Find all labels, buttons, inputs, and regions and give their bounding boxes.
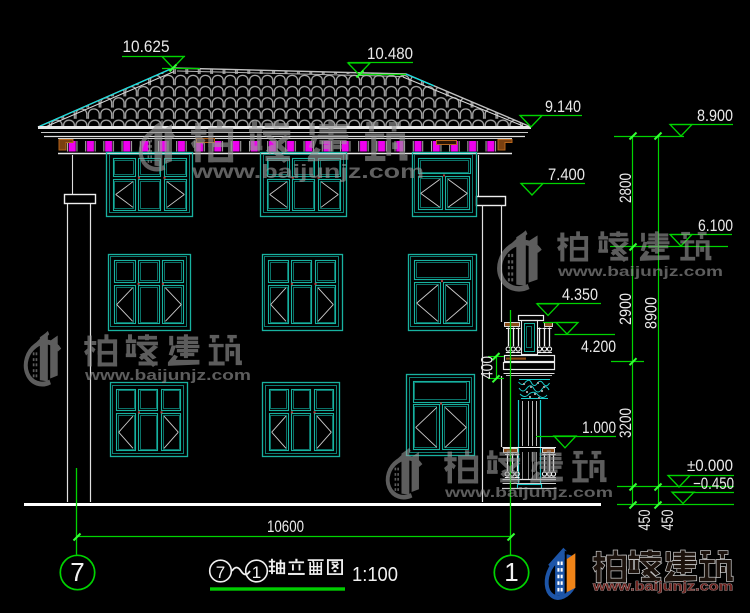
svg-text:−0.450: −0.450 — [693, 475, 734, 493]
svg-text:1: 1 — [252, 563, 261, 582]
svg-text:7: 7 — [70, 557, 84, 587]
svg-text:2900: 2900 — [617, 293, 635, 325]
svg-text:www.baijunjz.com: www.baijunjz.com — [191, 161, 424, 183]
svg-text:7: 7 — [216, 563, 225, 582]
svg-text:www.baijunjz.com: www.baijunjz.com — [84, 368, 251, 384]
svg-text:2800: 2800 — [617, 173, 635, 203]
svg-text:10.480: 10.480 — [367, 45, 413, 63]
svg-text:±0.000: ±0.000 — [687, 457, 733, 475]
svg-text:7.400: 7.400 — [548, 166, 585, 184]
svg-text:10.625: 10.625 — [123, 38, 170, 56]
svg-text:8900: 8900 — [643, 297, 661, 329]
svg-text:1.000: 1.000 — [582, 419, 616, 437]
svg-text:www.baijunjz.com: www.baijunjz.com — [557, 263, 723, 279]
svg-text:8.900: 8.900 — [697, 107, 733, 125]
svg-text:450: 450 — [659, 510, 677, 531]
svg-text:450: 450 — [636, 510, 654, 531]
svg-text:10600: 10600 — [267, 518, 304, 536]
svg-text:4.350: 4.350 — [562, 286, 598, 304]
svg-text:4.200: 4.200 — [581, 338, 616, 356]
svg-text:400: 400 — [479, 356, 497, 379]
svg-text:9.140: 9.140 — [545, 98, 581, 116]
svg-text:www.baijunjz.com: www.baijunjz.com — [444, 484, 613, 500]
svg-text:1:100: 1:100 — [352, 563, 398, 586]
svg-text:3200: 3200 — [617, 408, 635, 438]
svg-text:1: 1 — [504, 557, 518, 587]
svg-text:www.baijunjz.com: www.baijunjz.com — [592, 580, 733, 594]
